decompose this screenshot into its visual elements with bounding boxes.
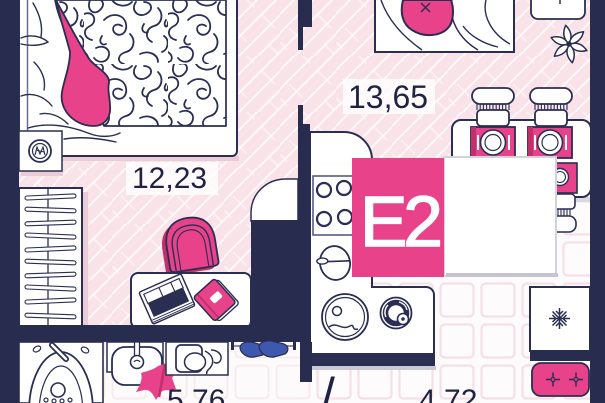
svg-text:5,76: 5,76 (167, 384, 225, 403)
svg-text:4,72: 4,72 (419, 384, 477, 403)
svg-text:E2: E2 (360, 183, 439, 262)
svg-text:13,65: 13,65 (348, 79, 428, 115)
svg-text:12,23: 12,23 (132, 162, 207, 195)
svg-text:/: / (321, 368, 335, 403)
